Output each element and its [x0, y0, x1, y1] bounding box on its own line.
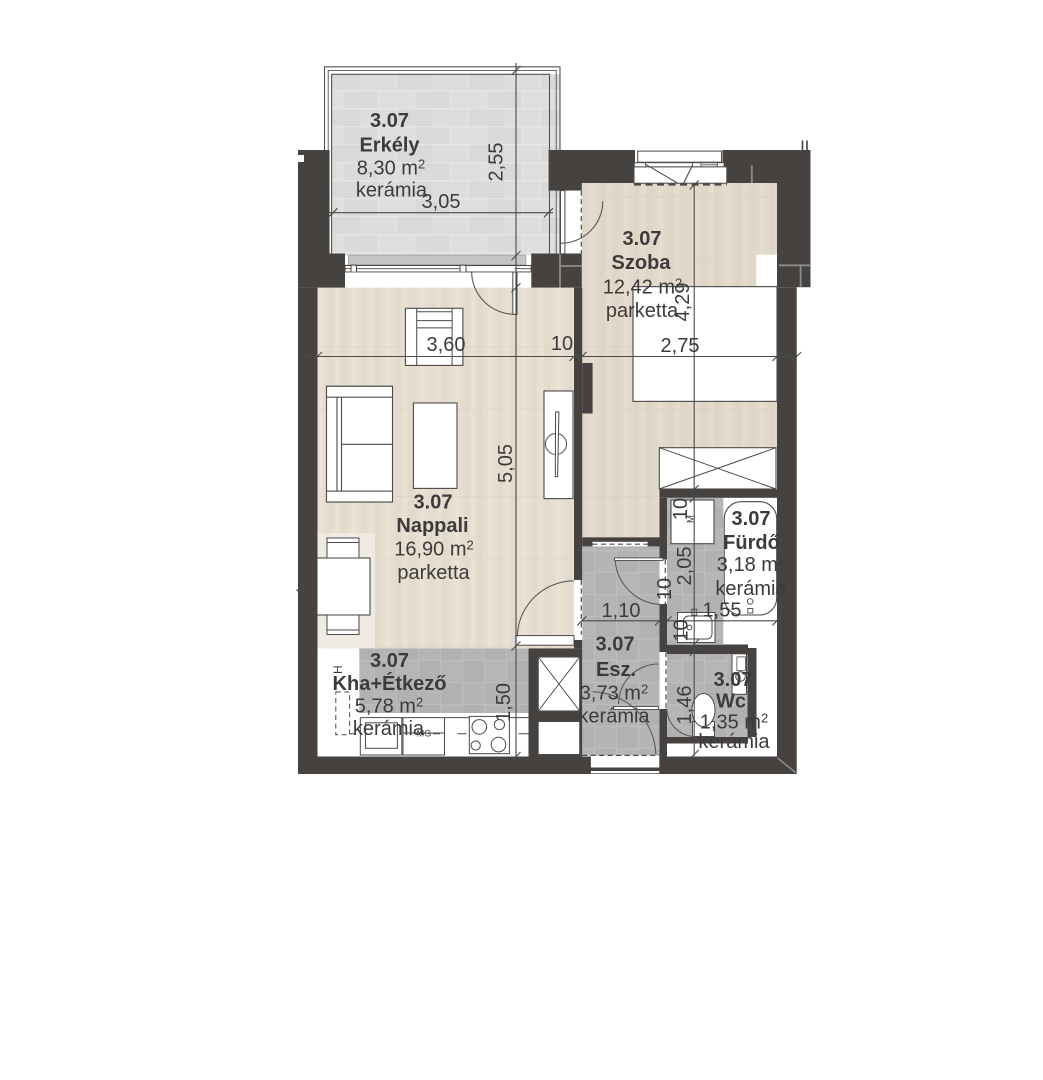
- svg-text:3.07: 3.07: [732, 508, 771, 530]
- svg-text:3,73 m2: 3,73 m2: [580, 682, 648, 705]
- svg-text:kerámia: kerámia: [715, 578, 787, 600]
- svg-text:3.07: 3.07: [596, 634, 635, 656]
- svg-text:kerámia: kerámia: [578, 706, 650, 728]
- svg-text:Esz.: Esz.: [596, 659, 636, 681]
- svg-text:5,78 m2: 5,78 m2: [355, 695, 423, 718]
- svg-text:12,42 m2: 12,42 m2: [603, 276, 683, 299]
- svg-text:Nappali: Nappali: [396, 515, 468, 537]
- svg-text:parketta: parketta: [397, 562, 470, 584]
- svg-text:3.07: 3.07: [370, 650, 409, 672]
- svg-text:3,05: 3,05: [422, 191, 461, 213]
- svg-text:10: 10: [670, 498, 692, 520]
- svg-text:10: 10: [654, 578, 676, 600]
- svg-text:kerámia: kerámia: [698, 731, 770, 753]
- svg-text:Szoba: Szoba: [612, 252, 672, 274]
- svg-text:2,55: 2,55: [486, 143, 508, 182]
- svg-text:1,50: 1,50: [493, 683, 515, 722]
- svg-text:Fürdő: Fürdő: [723, 532, 780, 554]
- svg-text:Erkély: Erkély: [359, 135, 420, 157]
- svg-text:1,46: 1,46: [674, 686, 696, 725]
- svg-text:4,29: 4,29: [672, 283, 694, 322]
- svg-text:kerámia: kerámia: [353, 718, 425, 740]
- svg-text:10: 10: [671, 619, 693, 641]
- svg-text:3,18 m2: 3,18 m2: [717, 553, 785, 576]
- svg-text:8,30 m2: 8,30 m2: [357, 157, 425, 180]
- svg-text:1,55: 1,55: [703, 600, 742, 622]
- svg-text:3.07: 3.07: [714, 669, 753, 691]
- svg-text:16,90 m2: 16,90 m2: [394, 538, 474, 561]
- svg-text:kerámia: kerámia: [356, 180, 428, 202]
- svg-text:3.07: 3.07: [414, 492, 453, 514]
- svg-text:3,60: 3,60: [427, 334, 466, 356]
- svg-text:2,75: 2,75: [661, 335, 700, 357]
- svg-text:1,10: 1,10: [602, 600, 641, 622]
- svg-text:10: 10: [551, 333, 573, 355]
- svg-text:3.07: 3.07: [370, 110, 409, 132]
- svg-text:Kha+Étkező: Kha+Étkező: [333, 672, 447, 695]
- svg-text:Wc: Wc: [716, 691, 746, 713]
- svg-text:parketta: parketta: [606, 300, 679, 322]
- svg-text:3.07: 3.07: [623, 228, 662, 250]
- svg-text:5,05: 5,05: [495, 444, 517, 483]
- svg-text:2,05: 2,05: [674, 547, 696, 586]
